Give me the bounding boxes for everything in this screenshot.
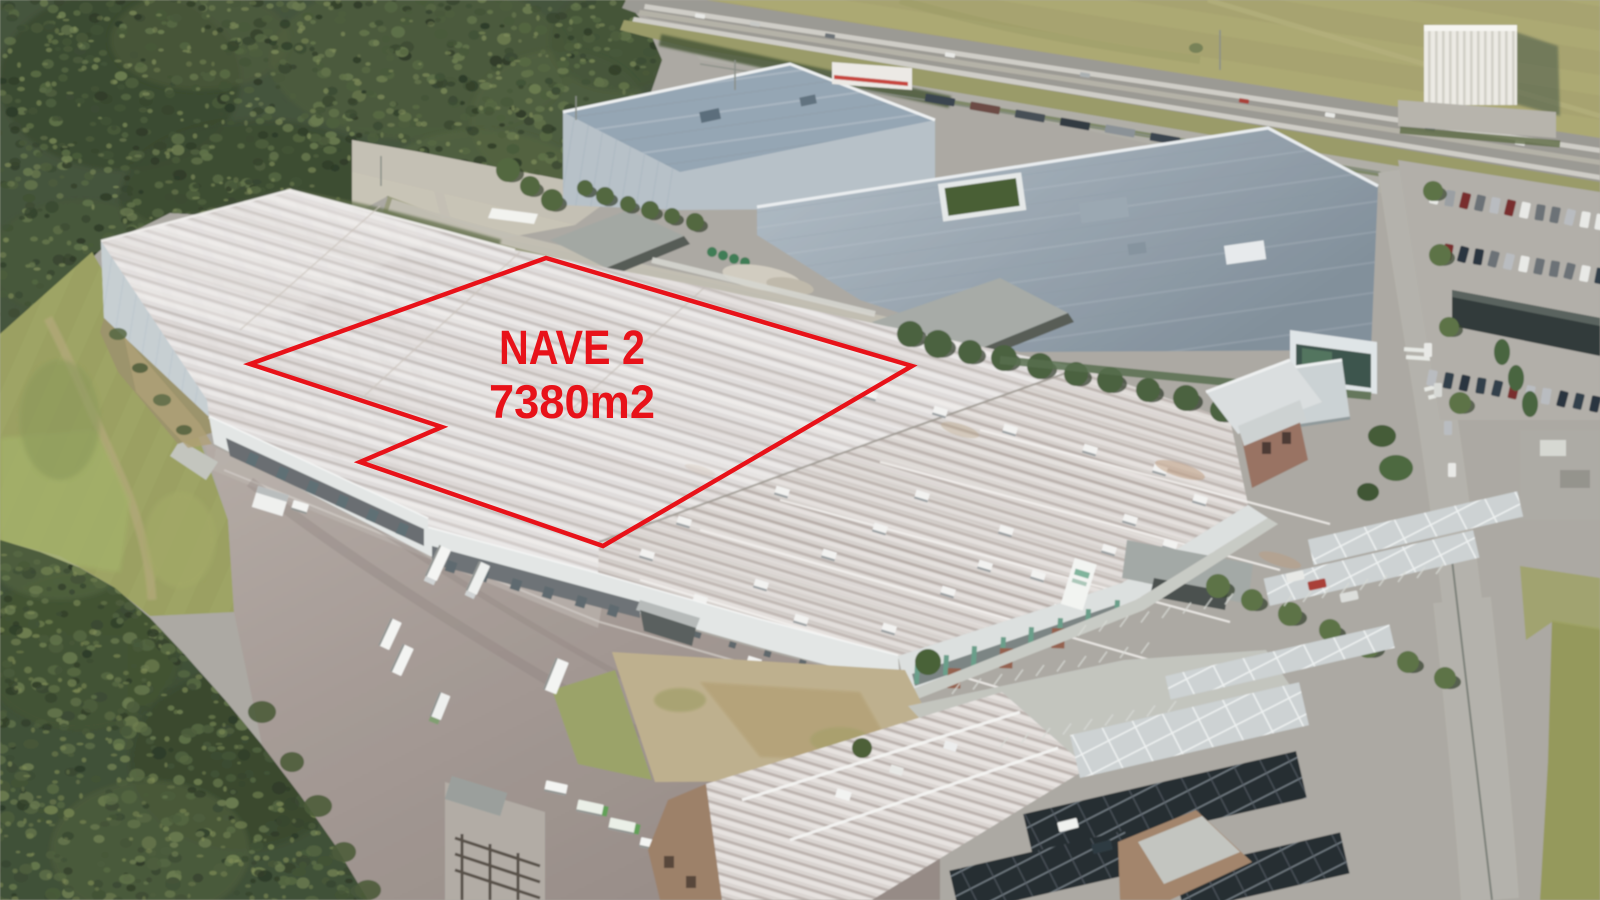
svg-text:NAVE 2: NAVE 2 [499, 322, 645, 375]
svg-text:7380m2: 7380m2 [489, 375, 655, 428]
